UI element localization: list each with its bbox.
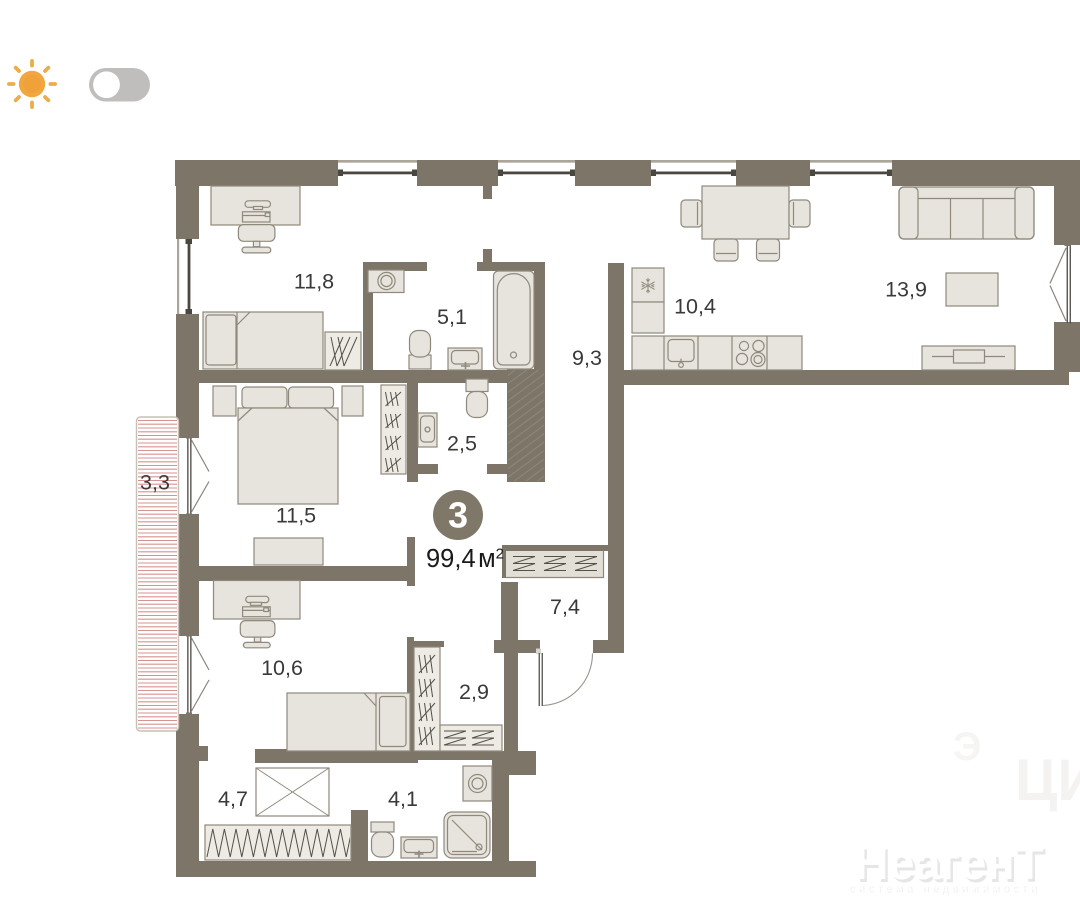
svg-text:11,5: 11,5 (276, 504, 316, 528)
svg-text:10,6: 10,6 (261, 656, 303, 680)
svg-text:2,5: 2,5 (447, 432, 477, 456)
svg-text:3: 3 (448, 495, 468, 536)
svg-text:13,9: 13,9 (885, 278, 927, 302)
svg-text:11,8: 11,8 (294, 270, 334, 294)
svg-text:9,3: 9,3 (572, 346, 602, 370)
svg-text:5,1: 5,1 (437, 305, 467, 329)
svg-text:Э: Э (953, 725, 981, 769)
svg-text:система недвижимости: система недвижимости (848, 882, 1039, 894)
svg-text:2,9: 2,9 (459, 680, 489, 704)
svg-text:7,4: 7,4 (550, 595, 580, 619)
svg-text:4,1: 4,1 (388, 787, 418, 811)
svg-text:3,3: 3,3 (140, 471, 170, 495)
svg-text:4,7: 4,7 (218, 787, 248, 811)
svg-text:ЦИ: ЦИ (1015, 748, 1080, 813)
svg-text:10,4: 10,4 (674, 295, 716, 319)
svg-text:99,4м2: 99,4м2 (426, 545, 504, 573)
